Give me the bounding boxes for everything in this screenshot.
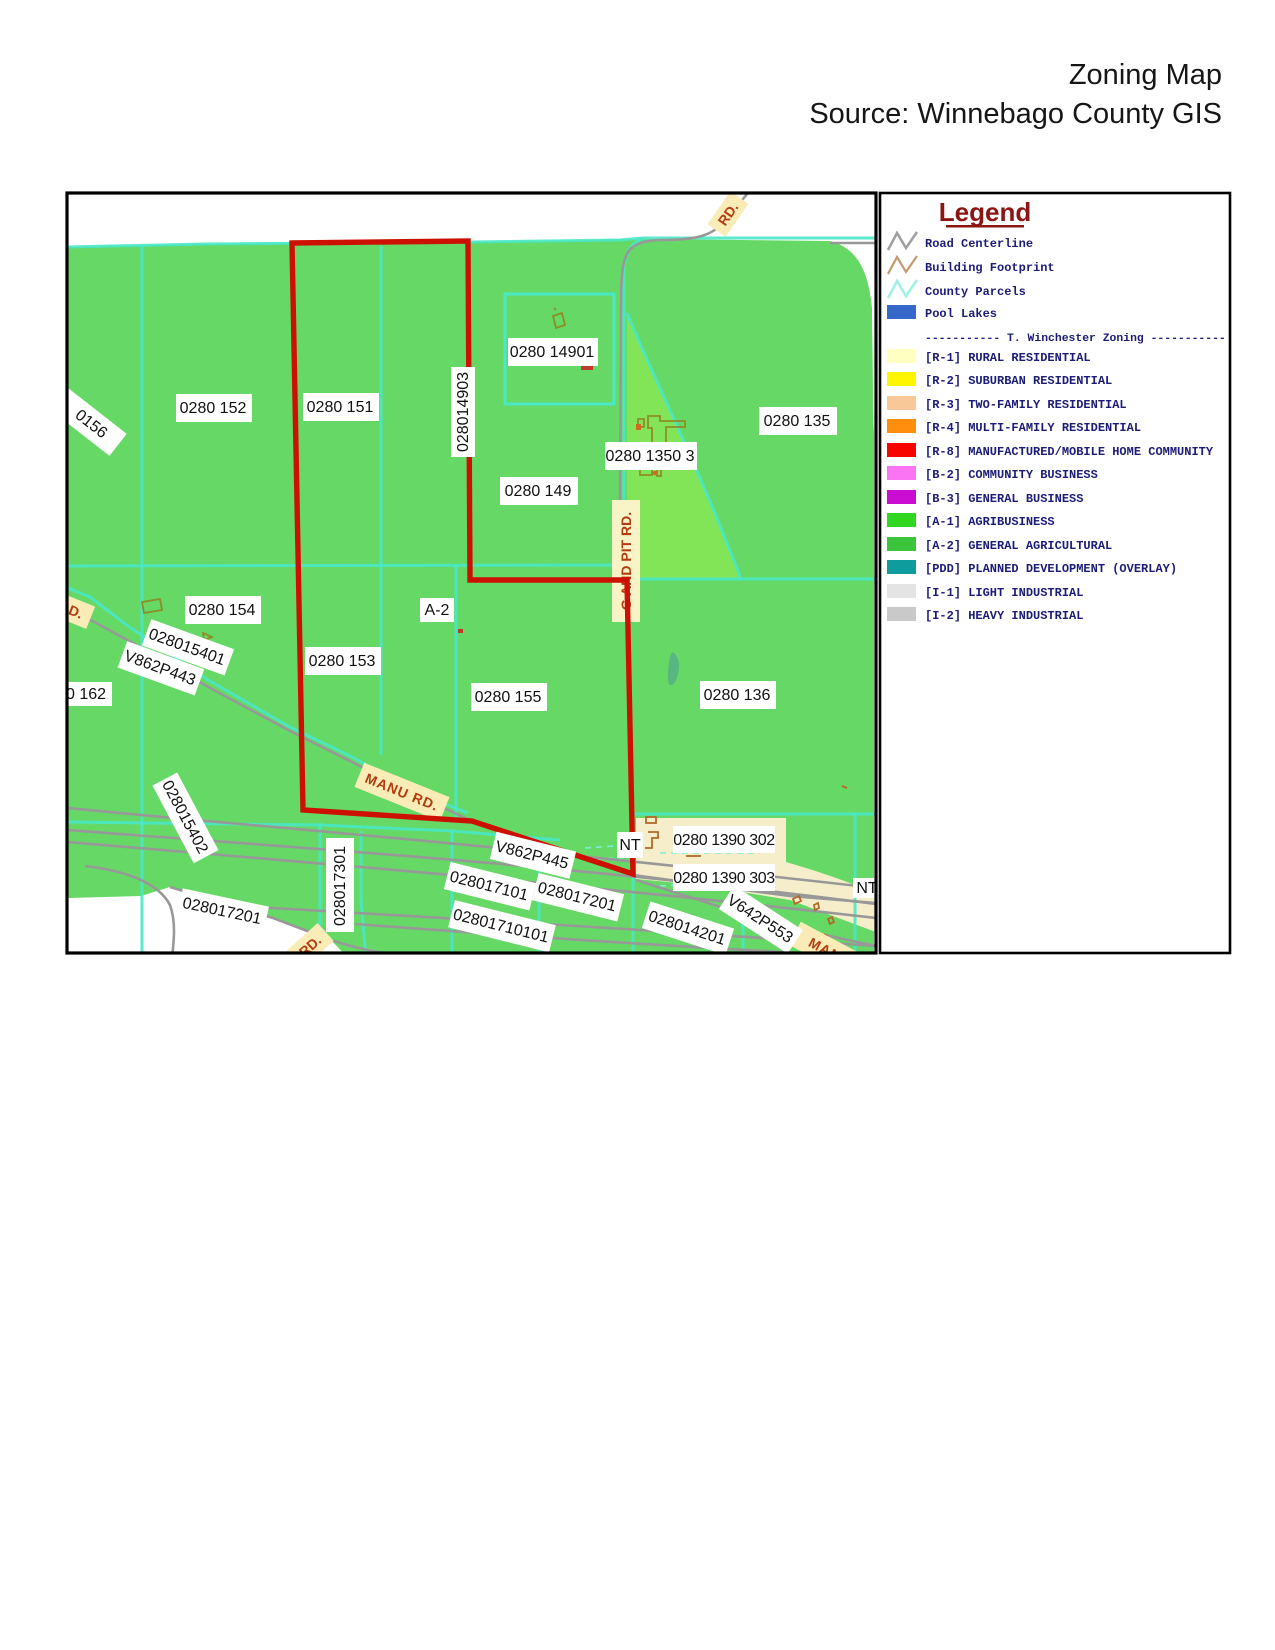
svg-text:0280 135: 0280 135 — [764, 413, 831, 430]
svg-text:0280 1350 3: 0280 1350 3 — [606, 448, 695, 465]
svg-text:0280 14901: 0280 14901 — [510, 344, 595, 361]
svg-text:Legend: Legend — [939, 197, 1031, 227]
svg-text:A-2: A-2 — [425, 602, 450, 619]
svg-text:[R-1] RURAL RESIDENTIAL: [R-1] RURAL RESIDENTIAL — [925, 351, 1091, 365]
svg-text:Zoning Map: Zoning Map — [1069, 59, 1222, 91]
svg-text:----------- T. Winchester Zoni: ----------- T. Winchester Zoning -------… — [925, 333, 1226, 345]
svg-text:[A-1] AGRIBUSINESS: [A-1] AGRIBUSINESS — [925, 515, 1055, 529]
svg-text:0280 149: 0280 149 — [505, 483, 572, 500]
svg-text:[R-4] MULTI-FAMILY RESIDENTIAL: [R-4] MULTI-FAMILY RESIDENTIAL — [925, 421, 1141, 435]
svg-text:0280 151: 0280 151 — [307, 399, 374, 416]
svg-text:0280 1390 302: 0280 1390 302 — [673, 832, 775, 849]
svg-text:[R-3] TWO-FAMILY RESIDENTIAL: [R-3] TWO-FAMILY RESIDENTIAL — [925, 398, 1127, 412]
svg-text:[I-1] LIGHT INDUSTRIAL: [I-1] LIGHT INDUSTRIAL — [925, 586, 1083, 600]
svg-text:[A-2] GENERAL AGRICULTURAL: [A-2] GENERAL AGRICULTURAL — [925, 539, 1112, 553]
svg-text:0280 1390 303: 0280 1390 303 — [673, 870, 775, 887]
svg-text:Building Footprint: Building Footprint — [925, 261, 1055, 275]
svg-text:Source: Winnebago County GIS: Source: Winnebago County GIS — [809, 98, 1222, 130]
svg-text:028014903: 028014903 — [455, 372, 472, 452]
svg-text:County Parcels: County Parcels — [925, 285, 1026, 299]
svg-text:028017301: 028017301 — [332, 846, 349, 926]
svg-text:[R-8] MANUFACTURED/MOBILE HOME: [R-8] MANUFACTURED/MOBILE HOME COMMUNITY — [925, 445, 1214, 459]
svg-text:[I-2] HEAVY INDUSTRIAL: [I-2] HEAVY INDUSTRIAL — [925, 609, 1083, 623]
svg-text:[PDD] PLANNED DEVELOPMENT (OVE: [PDD] PLANNED DEVELOPMENT (OVERLAY) — [925, 562, 1177, 576]
svg-text:Road Centerline: Road Centerline — [925, 237, 1033, 251]
svg-text:NT: NT — [619, 837, 641, 854]
svg-text:0 162: 0 162 — [66, 686, 106, 703]
svg-text:[R-2] SUBURBAN RESIDENTIAL: [R-2] SUBURBAN RESIDENTIAL — [925, 374, 1112, 388]
svg-text:0280 136: 0280 136 — [704, 687, 771, 704]
svg-text:Pool Lakes: Pool Lakes — [925, 307, 997, 321]
svg-text:0280 154: 0280 154 — [189, 602, 256, 619]
svg-text:0280 155: 0280 155 — [475, 689, 542, 706]
svg-text:[B-2] COMMUNITY BUSINESS: [B-2] COMMUNITY BUSINESS — [925, 468, 1098, 482]
svg-text:0280 153: 0280 153 — [309, 653, 376, 670]
svg-text:[B-3] GENERAL BUSINESS: [B-3] GENERAL BUSINESS — [925, 492, 1083, 506]
svg-text:0280 152: 0280 152 — [180, 400, 247, 417]
